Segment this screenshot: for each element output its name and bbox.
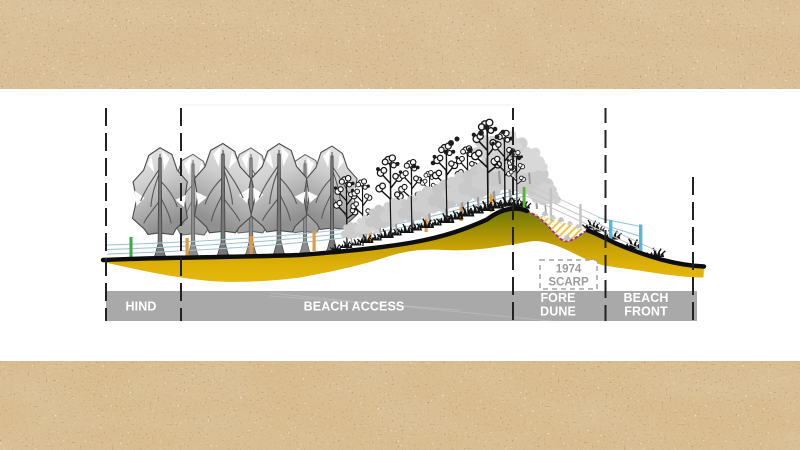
svg-text:BEACH ACCESS: BEACH ACCESS: [304, 300, 405, 314]
svg-text:FORE: FORE: [540, 291, 575, 305]
svg-text:BEACH: BEACH: [624, 291, 669, 305]
svg-text:SCARP: SCARP: [548, 277, 589, 289]
svg-text:HIND: HIND: [126, 300, 157, 314]
svg-text:DUNE: DUNE: [540, 305, 576, 319]
svg-text:FRONT: FRONT: [624, 305, 668, 319]
svg-text:1974: 1974: [556, 264, 582, 276]
